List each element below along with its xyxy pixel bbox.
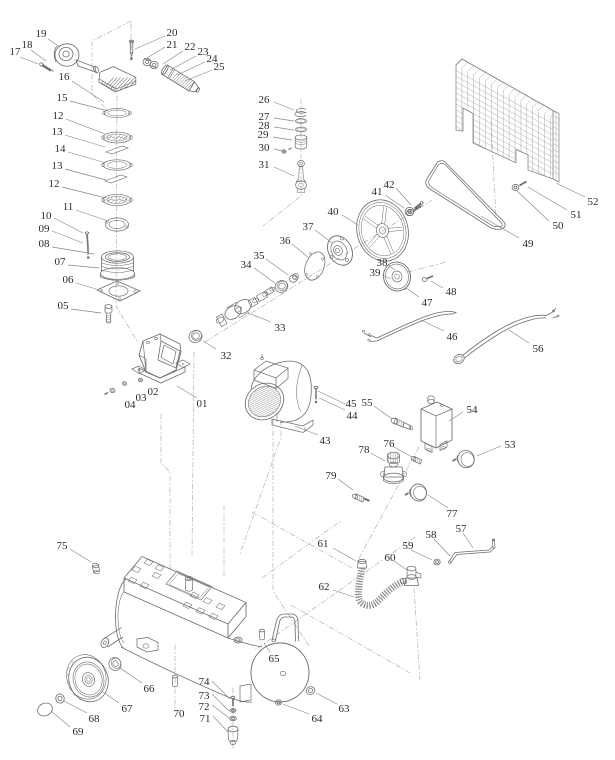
svg-text:51: 51 <box>571 209 582 221</box>
svg-text:56: 56 <box>533 343 545 355</box>
svg-text:78: 78 <box>359 444 371 456</box>
svg-text:42: 42 <box>384 179 395 191</box>
svg-text:10: 10 <box>41 210 53 222</box>
svg-text:41: 41 <box>372 186 383 198</box>
svg-text:50: 50 <box>553 220 565 232</box>
svg-text:65: 65 <box>269 653 281 665</box>
svg-text:22: 22 <box>185 41 196 53</box>
svg-text:34: 34 <box>241 259 253 271</box>
svg-text:14: 14 <box>55 143 67 155</box>
svg-text:55: 55 <box>362 397 374 409</box>
svg-text:58: 58 <box>426 529 438 541</box>
svg-text:74: 74 <box>199 676 211 688</box>
svg-text:60: 60 <box>385 552 397 564</box>
svg-text:52: 52 <box>588 196 599 208</box>
svg-text:21: 21 <box>167 39 178 51</box>
svg-text:77: 77 <box>447 508 459 520</box>
svg-text:33: 33 <box>275 322 287 334</box>
svg-text:43: 43 <box>320 435 332 447</box>
svg-text:09: 09 <box>39 223 51 235</box>
svg-text:04: 04 <box>125 399 137 411</box>
svg-text:06: 06 <box>63 274 75 286</box>
svg-text:39: 39 <box>370 267 382 279</box>
svg-text:19: 19 <box>36 28 48 40</box>
svg-text:47: 47 <box>422 297 434 309</box>
svg-text:08: 08 <box>39 238 51 250</box>
svg-text:69: 69 <box>73 726 85 738</box>
svg-text:79: 79 <box>326 470 338 482</box>
svg-text:46: 46 <box>447 331 459 343</box>
svg-text:40: 40 <box>328 206 340 218</box>
svg-text:17: 17 <box>10 46 22 58</box>
svg-text:16: 16 <box>59 71 71 83</box>
svg-text:63: 63 <box>339 703 351 715</box>
svg-text:20: 20 <box>167 27 179 39</box>
svg-text:03: 03 <box>136 392 148 404</box>
svg-text:37: 37 <box>303 221 315 233</box>
svg-text:05: 05 <box>58 300 70 312</box>
svg-text:36: 36 <box>280 235 292 247</box>
svg-text:13: 13 <box>52 126 64 138</box>
svg-text:35: 35 <box>254 250 266 262</box>
svg-text:11: 11 <box>63 201 74 213</box>
svg-text:32: 32 <box>221 350 232 362</box>
svg-text:07: 07 <box>55 256 67 268</box>
svg-text:49: 49 <box>523 238 535 250</box>
svg-text:01: 01 <box>197 398 208 410</box>
svg-text:68: 68 <box>89 713 101 725</box>
svg-text:18: 18 <box>22 39 34 51</box>
svg-text:70: 70 <box>174 708 186 720</box>
svg-text:31: 31 <box>259 159 270 171</box>
svg-text:53: 53 <box>505 439 517 451</box>
svg-text:30: 30 <box>259 142 271 154</box>
svg-text:44: 44 <box>347 410 359 422</box>
svg-text:54: 54 <box>467 404 479 416</box>
svg-text:76: 76 <box>384 438 396 450</box>
svg-text:59: 59 <box>403 540 415 552</box>
svg-text:61: 61 <box>318 538 329 550</box>
svg-text:73: 73 <box>199 690 211 702</box>
svg-text:57: 57 <box>456 523 468 535</box>
svg-text:66: 66 <box>144 683 156 695</box>
svg-text:45: 45 <box>346 398 358 410</box>
svg-text:26: 26 <box>259 94 271 106</box>
svg-text:48: 48 <box>446 286 458 298</box>
svg-text:02: 02 <box>148 386 159 398</box>
svg-text:25: 25 <box>214 61 226 73</box>
svg-text:64: 64 <box>312 713 324 725</box>
svg-text:67: 67 <box>122 703 134 715</box>
svg-text:72: 72 <box>199 701 210 713</box>
svg-text:29: 29 <box>258 129 270 141</box>
svg-text:13: 13 <box>52 160 64 172</box>
svg-text:75: 75 <box>57 540 69 552</box>
svg-text:62: 62 <box>319 581 330 593</box>
svg-text:15: 15 <box>57 92 69 104</box>
svg-text:12: 12 <box>49 178 60 190</box>
svg-text:12: 12 <box>53 110 64 122</box>
svg-text:71: 71 <box>200 713 211 725</box>
